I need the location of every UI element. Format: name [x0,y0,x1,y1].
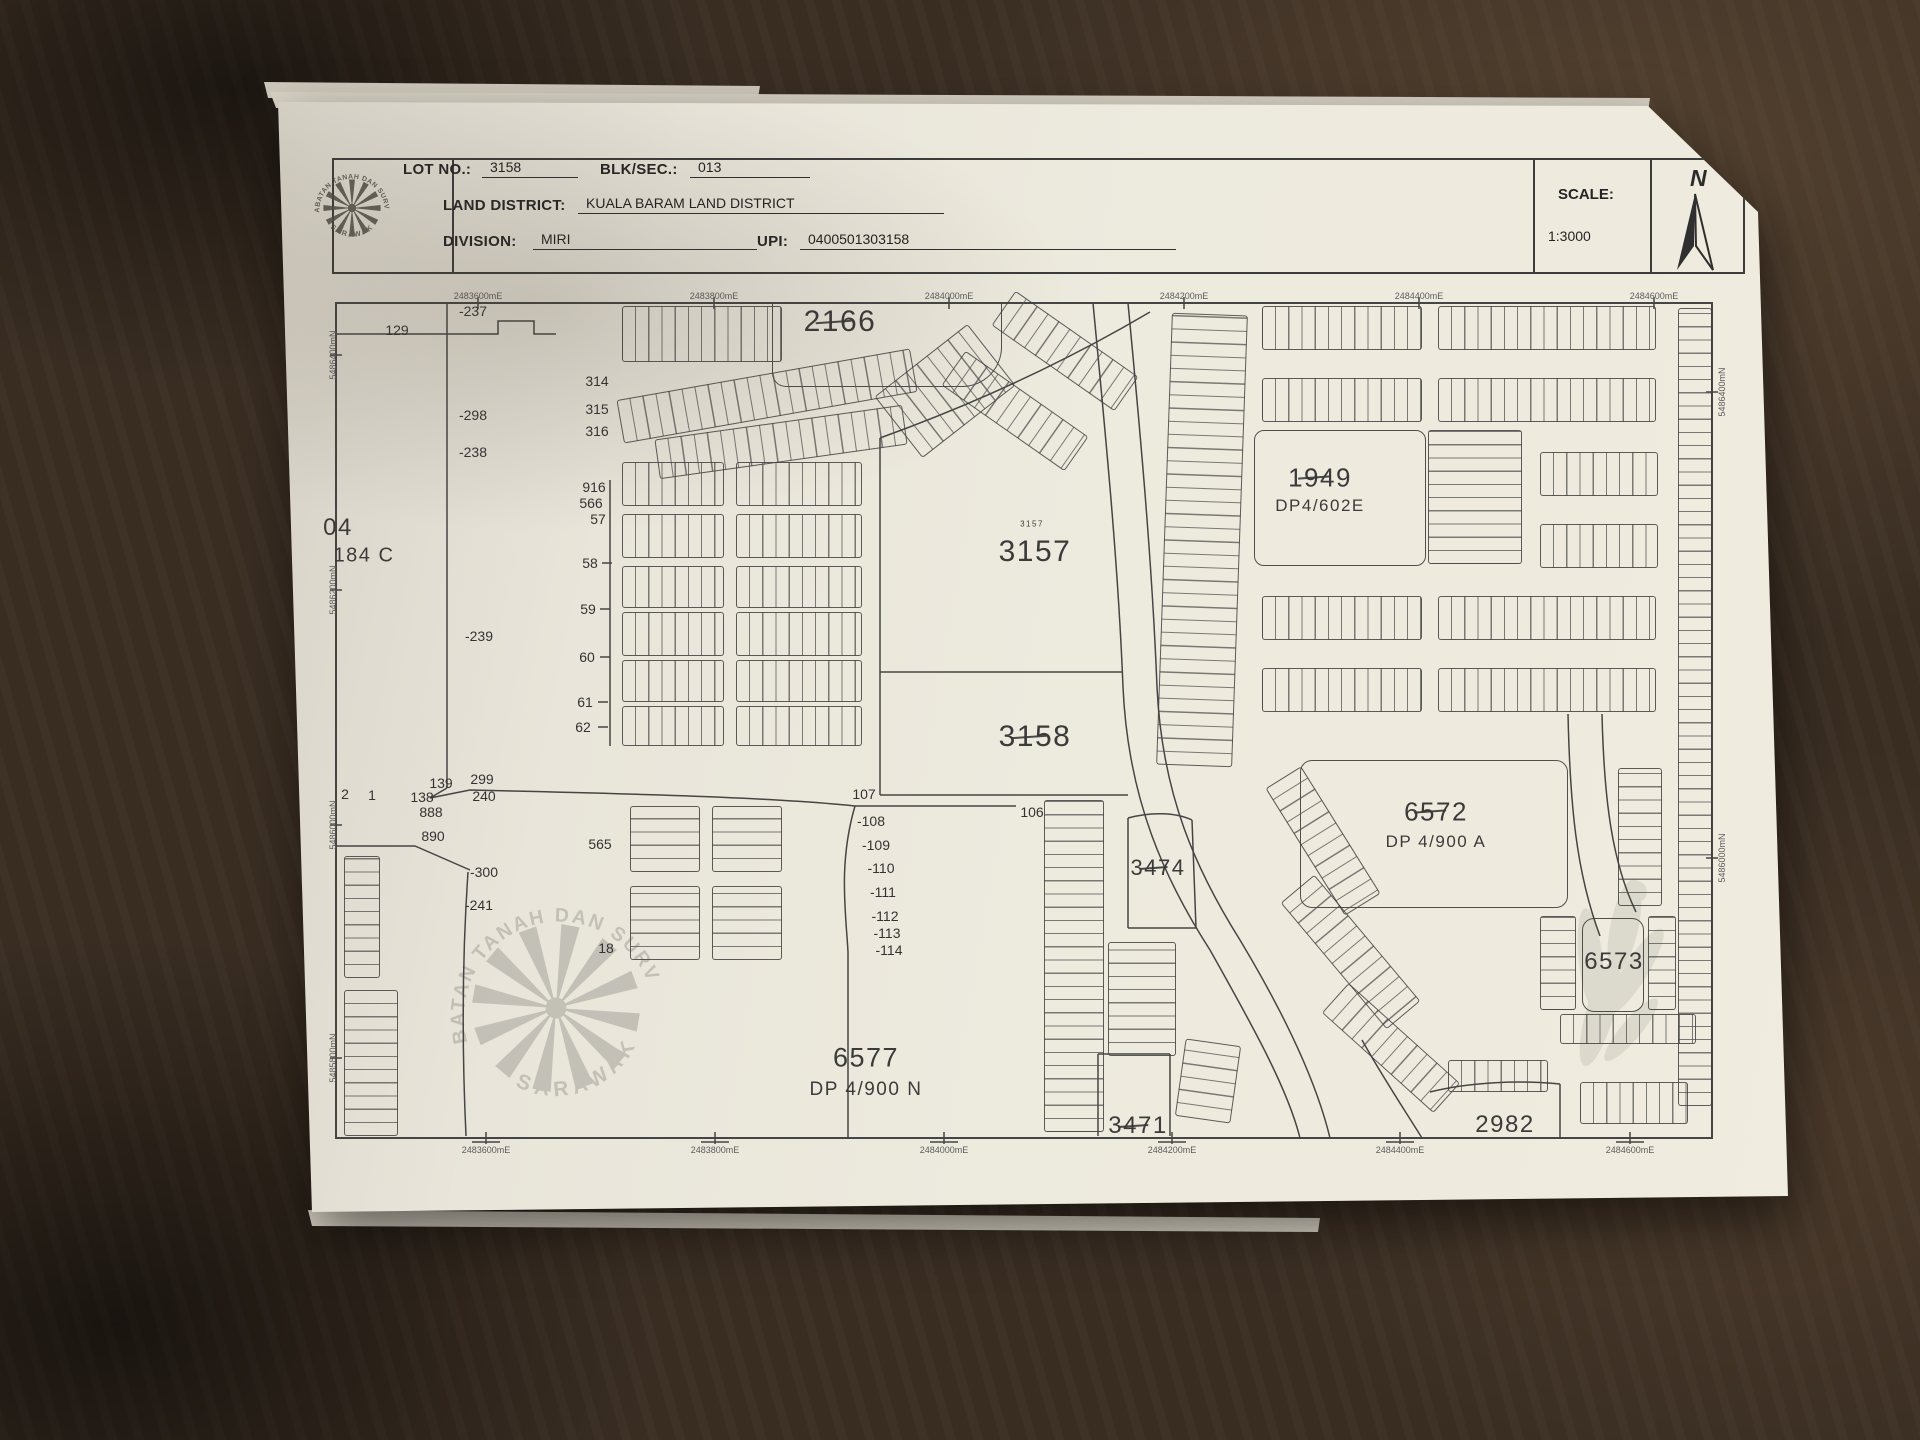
parcel-block [1540,452,1658,496]
parcel-block [1262,378,1422,422]
tick-number-61: 61 [577,694,593,710]
lot-label-3158: 3158 [999,720,1072,754]
tick-number-114: -114 [876,942,903,958]
tick-number-241: -241 [465,897,493,913]
photo-shadow-overlay [0,0,1920,1440]
boundary-step-129 [336,321,556,334]
tick-number-238: -238 [459,444,487,460]
tick-number-315: 315 [585,401,608,417]
parcel-block [1540,524,1658,568]
tick-number-890: 890 [421,828,444,844]
tick-number-239: -239 [465,628,493,644]
parcel-block [622,706,724,746]
tick-number-108: -108 [857,813,885,829]
survey-plan-page: JABATAN TANAH DAN SURVEI SARAWAK LOT NO.… [0,0,1920,1440]
survey-map: JABATAN TANAH DAN SURVEI SARAWAK [0,0,1920,1440]
lot-label-1949: 1949 [1288,463,1352,494]
lot-label-DP-4-900-N: DP 4/900 N [810,1079,923,1101]
parcel-block [622,306,782,362]
photo-canvas: { "header": { "lot_no_label": "LOT NO.:"… [0,0,1920,1440]
tick-number-129: 129 [385,322,408,338]
tick-number-2: 2 [341,786,349,802]
paper-sheet: JABATAN TANAH DAN SURVEI SARAWAK LOT NO.… [0,0,1920,1440]
tick-number-111: -111 [870,884,896,900]
tick-number-110: -110 [868,860,895,876]
tick-number-240: 240 [472,788,495,804]
tick-number-300: -300 [470,864,498,880]
grid-coordinate-label: 2484000mE [920,1145,969,1155]
crest-watermark [0,0,1920,1440]
grid-coordinate-label: 2484600mE [1606,1145,1655,1155]
lot-label-6577: 6577 [833,1043,899,1074]
tick-number-565: 565 [588,836,611,852]
parcel-block [1448,1060,1548,1092]
parcel-block [622,566,724,608]
lot-label-6572: 6572 [1404,797,1468,828]
lot-label-3474: 3474 [1131,855,1186,881]
grid-coordinate-label: 2484200mE [1148,1145,1197,1155]
tick-number-1: 1 [368,787,376,803]
lot-label-3157: 3157 [999,535,1072,569]
tick-number-888: 888 [419,804,442,820]
parcel-block [622,514,724,558]
parcel-block [1262,668,1422,712]
grid-coordinate-label: 5485800mN [328,1033,338,1082]
parcel-block [736,660,862,702]
tick-number-107: 107 [852,786,875,802]
parcel-block [1580,1082,1688,1124]
map-linework [0,0,1920,1440]
lot-label-04: 04 [323,514,353,542]
lot-label-3157: 3157 [1020,520,1044,529]
parcel-block [1678,308,1712,1106]
tick-number-314: 314 [585,373,608,389]
parcel-block [1156,313,1248,767]
parcel-block [1108,942,1176,1056]
lot-label-DP4-602E: DP4/602E [1275,496,1365,516]
tick-number-138: 138 [410,789,433,805]
grid-coordinate-label: 2483600mE [454,291,503,301]
parcel-block [736,566,862,608]
lot-label-2982: 2982 [1475,1111,1534,1139]
tick-number-106: 106 [1020,804,1043,820]
parcel-block [622,660,724,702]
tick-number-237: -237 [459,303,487,319]
grid-coordinate-label: 2484000mE [925,291,974,301]
grid-coordinate-label: 2484600mE [1630,291,1679,301]
parcel-block [630,806,700,872]
tick-number-60: 60 [579,649,595,665]
parcel-block [1262,596,1422,640]
grid-coordinate-label: 5486000mN [1717,833,1727,882]
parcel-block [1560,1014,1696,1044]
parcel-block [1648,916,1676,1010]
tick-number-299: 299 [470,771,493,787]
lot-label-6573: 6573 [1584,948,1643,976]
grid-coordinate-label: 2483600mE [462,1145,511,1155]
parcel-block [1438,306,1656,350]
parcel-block [622,612,724,656]
parcel-block [344,856,380,978]
parcel-block [712,886,782,960]
parcel-block [1618,768,1662,906]
parcel-block [1438,596,1656,640]
tick-number-57: 57 [590,511,606,527]
grid-coordinate-label: 2483800mE [690,291,739,301]
tick-number-316: 316 [585,423,608,439]
grid-coordinate-label: 2483800mE [691,1145,740,1155]
grid-coordinate-label: 2484200mE [1160,291,1209,301]
grid-coordinate-label: 5486200mN [328,565,338,614]
grid-coordinate-label: 2484400mE [1395,291,1444,301]
lot-label-184-C: 184 C [334,545,395,568]
parcel-block [736,612,862,656]
grid-coordinate-label: 5486400mN [1717,367,1727,416]
tick-number-566: 566 [579,495,602,511]
tick-number-18: 18 [598,940,614,956]
parcel-block [630,886,700,960]
lot-label-3471: 3471 [1108,1112,1167,1140]
parcel-block [344,990,398,1136]
tick-number-916: 916 [582,479,605,495]
parcel-block [712,806,782,872]
grid-coordinate-label: 5486400mN [328,330,338,379]
lot-label-DP-4-900-A: DP 4/900 A [1386,832,1487,852]
parcel-block [1262,306,1422,350]
parcel-block [736,706,862,746]
grid-coordinate-label: 2484400mE [1376,1145,1425,1155]
parcel-block [1175,1038,1241,1123]
parcel-block [1438,378,1656,422]
tick-number-298: -298 [459,407,487,423]
parcel-block [1438,668,1656,712]
parcel-block [1540,916,1576,1010]
tick-number-62: 62 [575,719,591,735]
parcel-block [1044,800,1104,1132]
lot-label-2166: 2166 [804,305,877,339]
tick-number-113: -113 [874,925,901,941]
grid-coordinate-label: 5486000mN [328,800,338,849]
tick-number-109: -109 [862,837,890,853]
parcel-block [736,462,862,506]
parcel-block [622,462,724,506]
tick-number-59: 59 [580,601,596,617]
parcel-block [1428,430,1522,564]
tick-number-112: -112 [872,908,899,924]
tick-number-58: 58 [582,555,598,571]
parcel-block [736,514,862,558]
